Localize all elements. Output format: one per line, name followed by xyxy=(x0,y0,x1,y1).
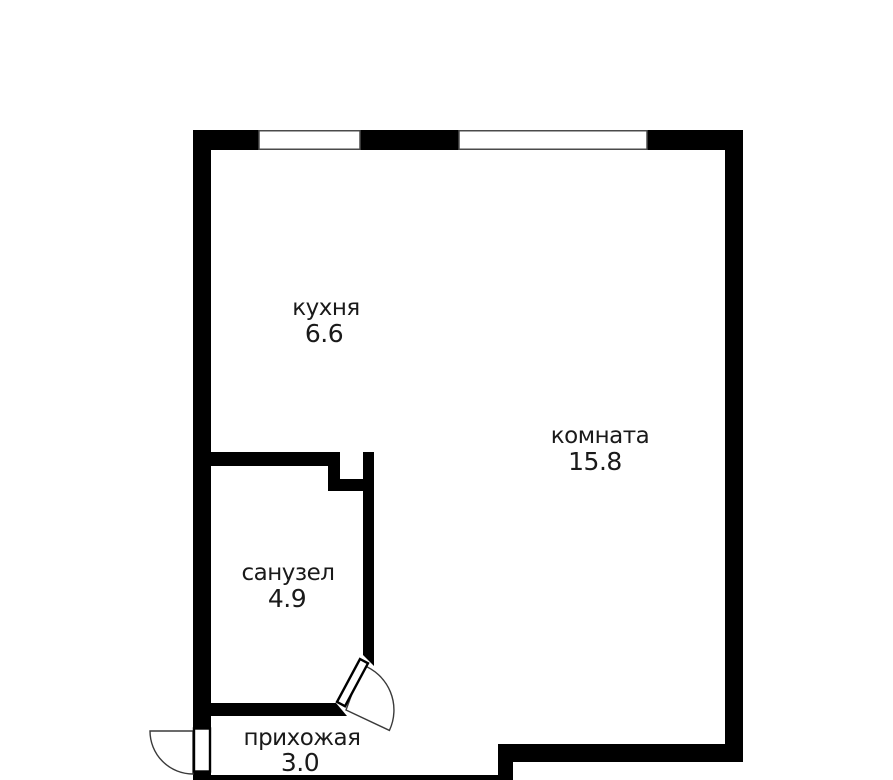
outer-wall-top-mid-segment xyxy=(360,130,459,150)
entrance-door-leaf xyxy=(194,729,210,772)
outer-wall-bottom-right xyxy=(498,744,743,762)
room-area: 15.8 xyxy=(568,447,622,476)
floor-plan-canvas: кухня 6.6 комната 15.8 санузел 4.9 прихо… xyxy=(0,0,893,780)
doors xyxy=(150,659,394,774)
entrance-door-swing-arc xyxy=(150,731,193,774)
bathroom-wall-bottom xyxy=(211,703,347,716)
hallway-area: 3.0 xyxy=(281,748,319,777)
outer-wall-step xyxy=(498,744,513,780)
floor-plan: кухня 6.6 комната 15.8 санузел 4.9 прихо… xyxy=(0,0,893,780)
bathroom-wall-right xyxy=(363,452,374,666)
outer-wall-bottom-left xyxy=(193,775,513,780)
bathroom-label: санузел xyxy=(242,560,335,586)
bathroom-wall-top xyxy=(211,452,340,466)
outer-wall-left-upper xyxy=(193,130,211,728)
room-window xyxy=(459,131,647,150)
kitchen-window xyxy=(259,131,360,150)
bathroom-area: 4.9 xyxy=(268,584,306,613)
bathroom-duct-wall-horizontal xyxy=(328,479,368,491)
kitchen-area: 6.6 xyxy=(305,319,343,348)
kitchen-label: кухня xyxy=(292,295,360,321)
room-label: комната xyxy=(551,423,649,449)
outer-wall-right xyxy=(725,130,743,762)
